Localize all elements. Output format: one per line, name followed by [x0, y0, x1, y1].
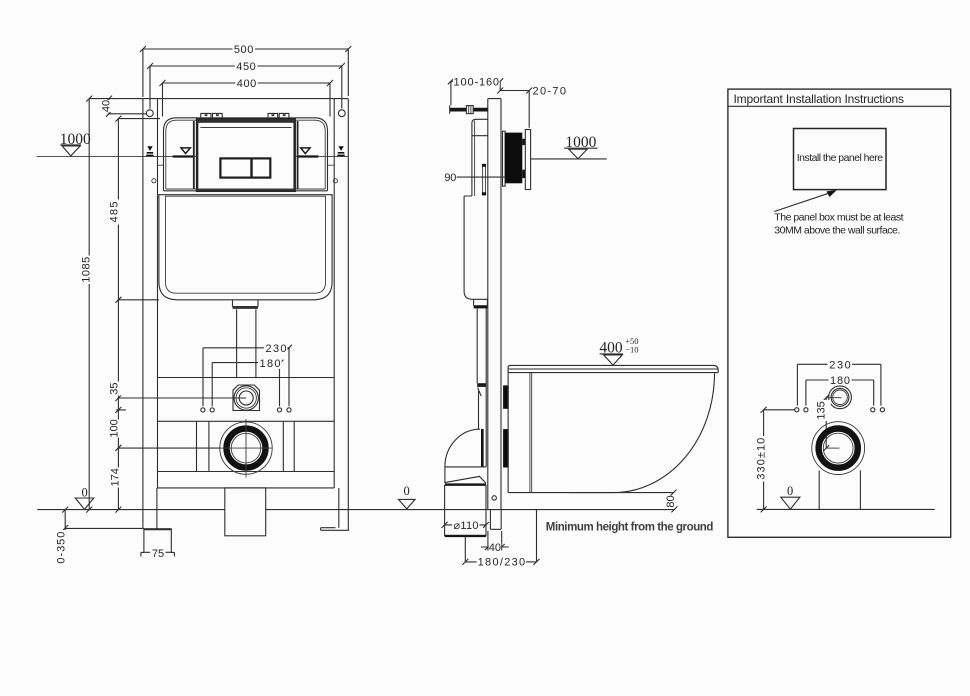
- svg-text:The panel box must be at least: The panel box must be at least: [774, 212, 903, 224]
- svg-text:330±10: 330±10: [755, 438, 767, 480]
- svg-text:1085: 1085: [80, 257, 92, 283]
- svg-text:100-160: 100-160: [454, 76, 500, 88]
- svg-text:90: 90: [444, 172, 456, 184]
- svg-text:450: 450: [236, 61, 256, 73]
- svg-text:−10: −10: [625, 344, 638, 354]
- svg-text:20-70: 20-70: [533, 86, 567, 98]
- svg-text:0-350: 0-350: [56, 532, 68, 564]
- svg-text:75: 75: [152, 548, 164, 560]
- svg-text:230: 230: [829, 359, 851, 371]
- svg-text:0: 0: [404, 484, 410, 498]
- svg-text:Install the panel here: Install the panel here: [797, 152, 883, 164]
- svg-text:174: 174: [109, 468, 121, 486]
- svg-text:0: 0: [82, 486, 88, 500]
- svg-text:80: 80: [665, 495, 677, 507]
- svg-text:180: 180: [830, 375, 850, 387]
- svg-text:Important Installation Instruc: Important Installation Instructions: [734, 92, 905, 106]
- svg-text:135: 135: [815, 401, 827, 419]
- svg-text:⌀110: ⌀110: [454, 520, 479, 532]
- svg-text:30MM above the wall surface.: 30MM above the wall surface.: [774, 224, 900, 236]
- svg-text:0: 0: [787, 484, 793, 498]
- svg-text:Minimum height from the ground: Minimum height from the ground: [546, 522, 714, 534]
- svg-text:485: 485: [109, 202, 121, 223]
- svg-text:40: 40: [489, 542, 501, 554]
- svg-text:35: 35: [108, 382, 120, 394]
- svg-text:230: 230: [266, 343, 287, 355]
- svg-text:40: 40: [101, 100, 113, 112]
- svg-text:100: 100: [108, 419, 120, 437]
- svg-text:180: 180: [260, 358, 281, 370]
- svg-text:500: 500: [234, 44, 254, 56]
- svg-text:400: 400: [237, 78, 257, 90]
